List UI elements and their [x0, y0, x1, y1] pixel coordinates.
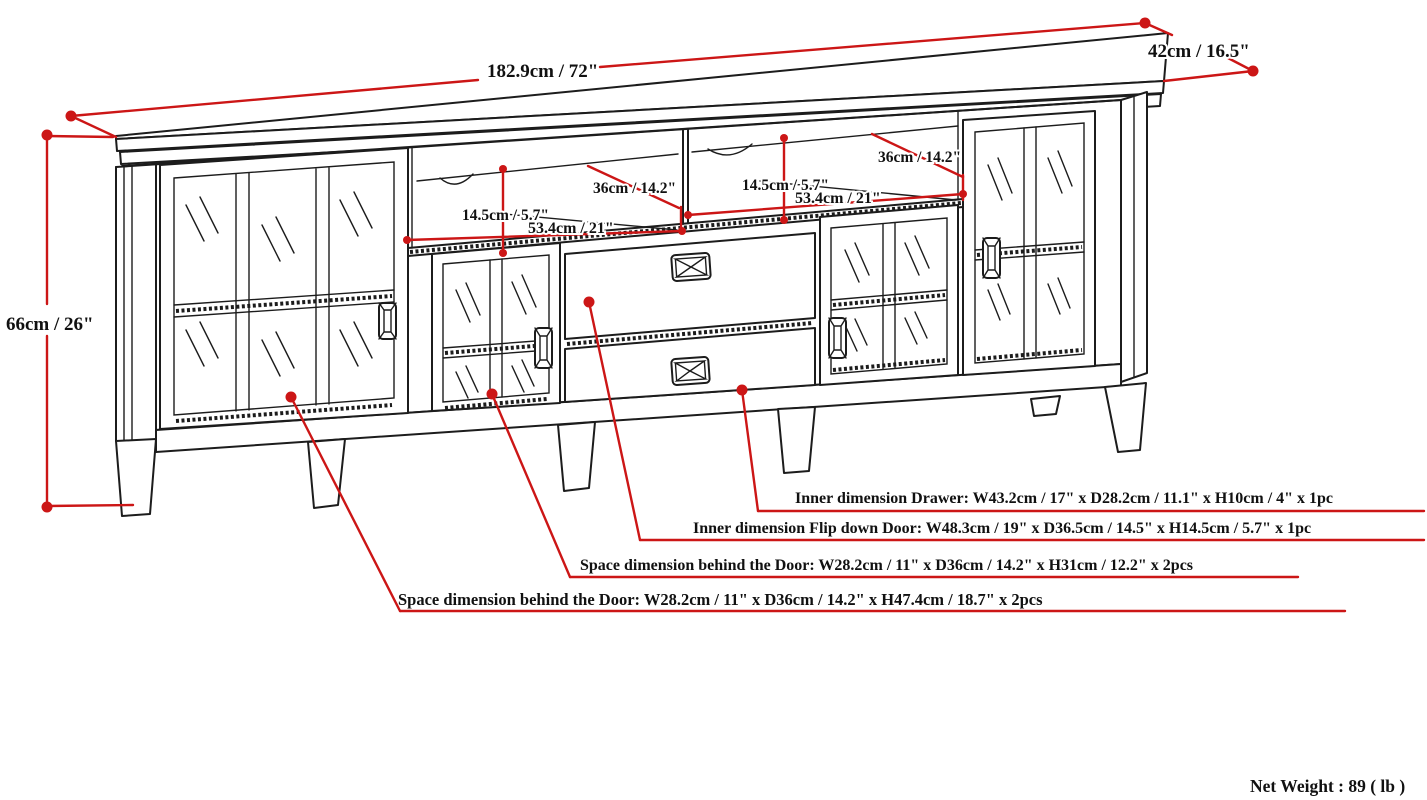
overall-width-label: 182.9cm / 72": [487, 61, 598, 82]
glass-door-right: [963, 111, 1095, 375]
left-compartment-width-label: 53.4cm / 21": [528, 220, 614, 237]
annotation-space-door-2: Space dimension behind the Door: W28.2cm…: [398, 590, 1043, 609]
furniture-dimension-diagram: 182.9cm / 72" 42cm / 16.5" 66cm / 26" 14…: [0, 0, 1427, 800]
drawer-pull: [671, 357, 710, 386]
overall-depth-label: 42cm / 16.5": [1148, 41, 1250, 62]
flip-door-pull: [671, 253, 711, 282]
glass-door-mid-left: [432, 243, 560, 411]
right-compartment-width-label: 53.4cm / 21": [795, 190, 881, 207]
glass-door-mid-right: [820, 205, 958, 385]
right-compartment-depth-label: 36cm / 14.2": [878, 149, 961, 166]
tv-stand-line-drawing: 182.9cm / 72" 42cm / 16.5" 66cm / 26" 14…: [0, 0, 1427, 800]
overall-height-label: 66cm / 26": [6, 314, 94, 335]
annotation-flip-door: Inner dimension Flip down Door: W48.3cm …: [693, 520, 1311, 537]
door-handle-left: [379, 303, 396, 339]
left-compartment-depth-label: 36cm / 14.2": [593, 180, 676, 197]
door-handle-mid-left: [535, 328, 552, 368]
annotation-drawer: Inner dimension Drawer: W43.2cm / 17" x …: [795, 490, 1333, 507]
net-weight-label: Net Weight : 89 ( lb ): [1250, 776, 1405, 796]
door-handle-right: [983, 238, 1000, 278]
glass-door-left: [160, 148, 408, 429]
annotation-space-door-1: Space dimension behind the Door: W28.2cm…: [580, 557, 1193, 574]
door-handle-mid-right: [829, 318, 846, 358]
